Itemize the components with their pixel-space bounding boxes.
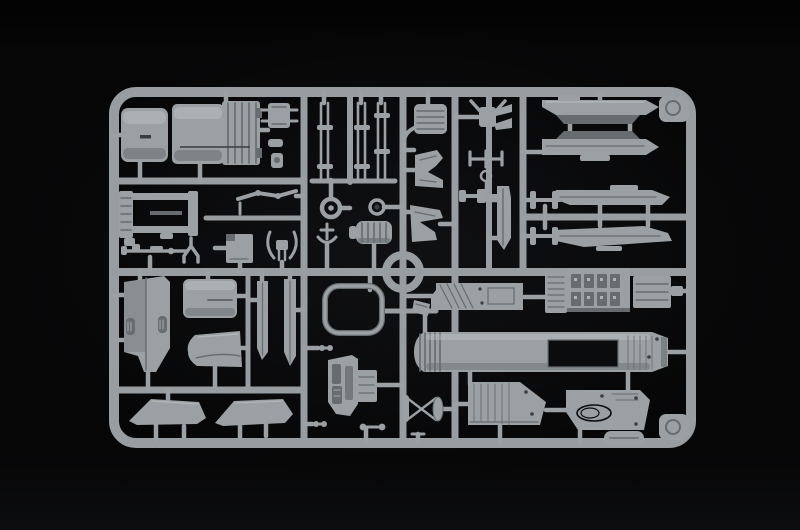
boot-bracket <box>415 150 443 188</box>
canopy-frame-ring <box>325 286 382 333</box>
x-brace-strut <box>402 395 443 422</box>
valve-fitting <box>262 103 297 128</box>
seat-cushion <box>404 104 447 150</box>
avionics-panel <box>431 283 523 310</box>
corner-gusset-top-right <box>659 96 689 122</box>
landing-gear-rod-set <box>317 103 390 180</box>
moulding-tab <box>604 431 644 446</box>
fin-half-b <box>284 279 296 366</box>
small-fittings-cluster <box>268 139 283 168</box>
wing-panel-slab <box>124 276 170 372</box>
tow-bar <box>470 151 502 167</box>
exhaust-nozzle-rear-half <box>172 101 262 165</box>
intake-duct <box>183 279 237 318</box>
cockpit-tub <box>328 355 358 416</box>
wing-glove-panel-b <box>566 390 650 430</box>
store-rail-lower-a <box>552 185 670 205</box>
fin-half-a <box>257 281 268 360</box>
rear-fuselage-half <box>414 332 668 372</box>
store-rail-upper-b <box>542 131 659 161</box>
access-panel <box>226 234 253 263</box>
engine-accessory-block <box>349 221 392 244</box>
nose-cone <box>188 331 242 367</box>
blade-pylon <box>497 186 511 250</box>
chassis-frame <box>119 191 198 246</box>
linkage-rod <box>238 190 296 214</box>
corner-gusset-bottom-right <box>659 414 689 440</box>
sprue-photo <box>0 0 800 530</box>
mirror-wedge <box>412 300 430 316</box>
wing-glove-panel-a <box>468 382 546 425</box>
taileron-a <box>129 399 206 425</box>
store-rail-lower-b <box>552 226 672 251</box>
equipment-bay-box <box>545 268 630 313</box>
sprue-illustration <box>0 0 800 530</box>
taileron-b <box>215 399 293 426</box>
anchor-strut <box>318 224 336 243</box>
antler-bracket <box>268 232 297 260</box>
side-console-box <box>356 370 377 402</box>
ribbed-electronics-box <box>633 276 683 308</box>
wheel-hub-large <box>322 199 340 217</box>
y-strut <box>184 238 198 262</box>
exhaust-nozzle-front-half <box>121 108 168 162</box>
